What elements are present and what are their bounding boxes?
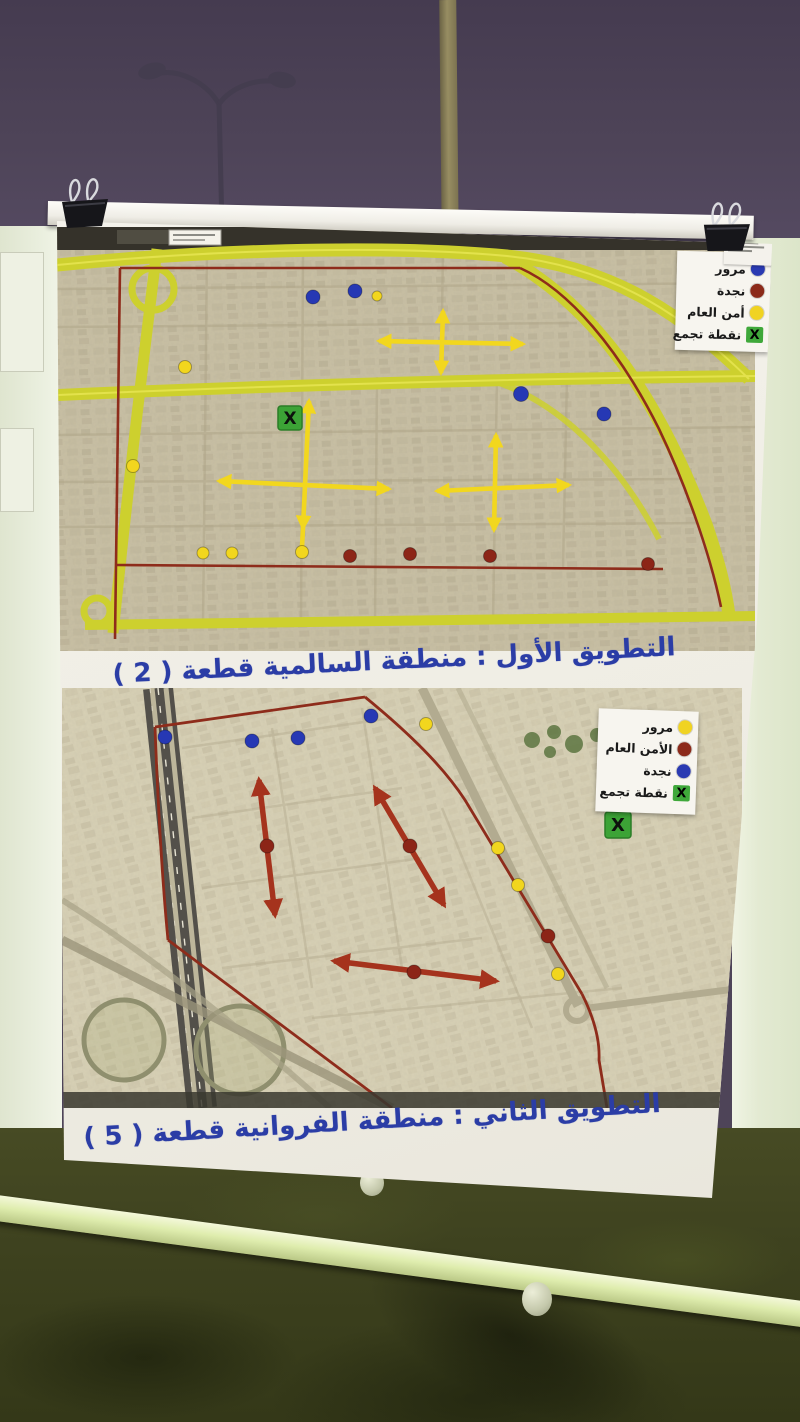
map-note-sticker — [169, 230, 221, 245]
legend-label: الأمن العام — [605, 739, 672, 756]
assembly-point-marker: X — [278, 406, 302, 430]
photo-of-map-poster: X — [0, 0, 800, 1422]
binder-clip-left — [58, 168, 114, 230]
assembly-x-icon: X — [746, 327, 763, 343]
legend-label: نقطة تجمع — [673, 325, 742, 342]
legend-label: نجدة — [643, 762, 672, 778]
svg-text:X: X — [283, 409, 296, 429]
binder-clip-right — [698, 191, 757, 256]
legend-item: نقطة تجمع X — [601, 779, 691, 804]
legend-top-map: مرور نجدة أمن العام نقطة تجمع X — [675, 251, 772, 352]
yellow-dot-icon — [750, 306, 764, 320]
streetlight-icon — [130, 38, 310, 228]
legend-label: مرور — [642, 718, 673, 734]
assembly-point-marker: X — [605, 812, 631, 838]
posted-paper — [0, 252, 44, 372]
legend-bottom-map: مرور الأمن العام نجدة نقطة تجمع X — [595, 708, 699, 814]
legend-label: نقطة تجمع — [599, 783, 668, 800]
assembly-x-icon: X — [673, 785, 691, 802]
legend-label: أمن العام — [687, 304, 745, 321]
dark-red-dot-icon — [750, 284, 764, 298]
stand-knob — [522, 1282, 552, 1316]
legend-label: نجدة — [717, 282, 746, 298]
legend-item: نجدة — [681, 278, 765, 302]
legend-item: الأمن العام — [602, 735, 692, 760]
legend-item: أمن العام — [680, 300, 764, 324]
yellow-dot-icon — [678, 720, 692, 734]
posted-paper — [0, 428, 34, 512]
blue-dot-icon — [676, 764, 690, 778]
satellite-map-salmiya: X — [57, 227, 755, 651]
legend-item: نقطة تجمع X — [680, 322, 764, 346]
dark-red-dot-icon — [677, 742, 691, 756]
svg-text:X: X — [611, 815, 625, 836]
legend-item: نجدة — [601, 757, 691, 782]
legend-item: مرور — [603, 713, 693, 738]
